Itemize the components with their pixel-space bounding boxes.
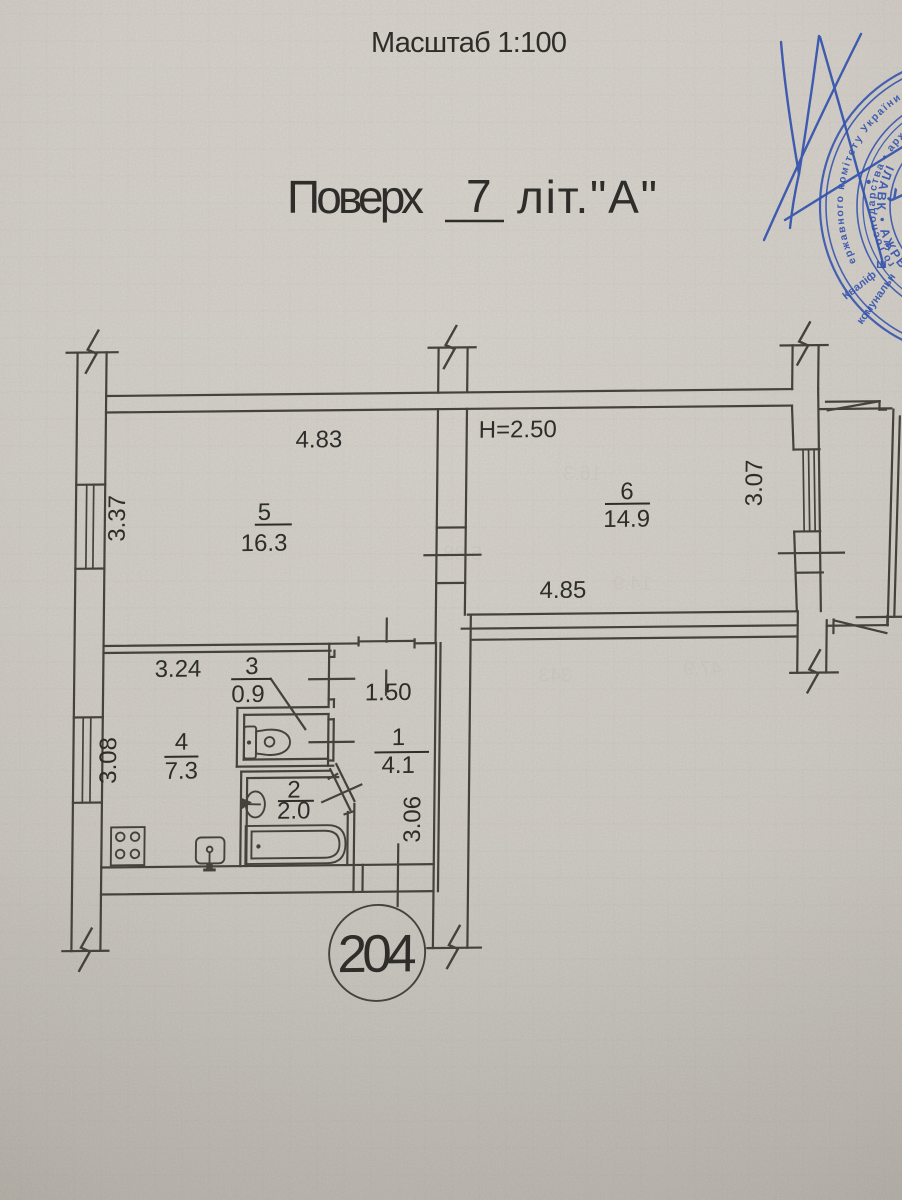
- svg-text:3.06: 3.06: [399, 796, 426, 843]
- svg-text:3.08: 3.08: [95, 737, 122, 784]
- svg-text:5: 5: [258, 499, 272, 526]
- svg-text:0.9: 0.9: [231, 681, 265, 708]
- svg-text:1.50: 1.50: [365, 679, 412, 706]
- svg-text:14.9: 14.9: [603, 506, 650, 533]
- svg-text:•: •: [866, 174, 871, 191]
- svg-text:H=2.50: H=2.50: [479, 416, 557, 444]
- svg-text:3: 3: [245, 653, 259, 680]
- svg-text:3.37: 3.37: [104, 495, 131, 542]
- svg-text:Масштаб 1:100: Масштаб 1:100: [371, 27, 567, 59]
- svg-text:Поверх: Поверх: [287, 171, 424, 223]
- svg-text:7.3: 7.3: [164, 758, 198, 785]
- svg-text:4: 4: [175, 729, 189, 756]
- svg-text:1: 1: [392, 724, 406, 751]
- svg-text:14.9: 14.9: [613, 573, 652, 595]
- svg-text:3.07: 3.07: [741, 459, 768, 506]
- svg-text:літ."А": літ."А": [517, 171, 657, 223]
- svg-text:7: 7: [466, 170, 492, 222]
- svg-text:4.85: 4.85: [539, 577, 586, 604]
- svg-text:16.3: 16.3: [241, 530, 288, 557]
- svg-text:204: 204: [337, 924, 417, 984]
- svg-text:47.9: 47.9: [683, 658, 722, 680]
- svg-text:4.83: 4.83: [295, 426, 342, 453]
- svg-text:16.3: 16.3: [563, 463, 602, 485]
- svg-text:3.24: 3.24: [155, 656, 202, 683]
- svg-text:6: 6: [620, 478, 634, 505]
- svg-text:4.1: 4.1: [381, 752, 415, 779]
- svg-text:343: 343: [539, 665, 572, 687]
- svg-text:з: з: [884, 238, 891, 253]
